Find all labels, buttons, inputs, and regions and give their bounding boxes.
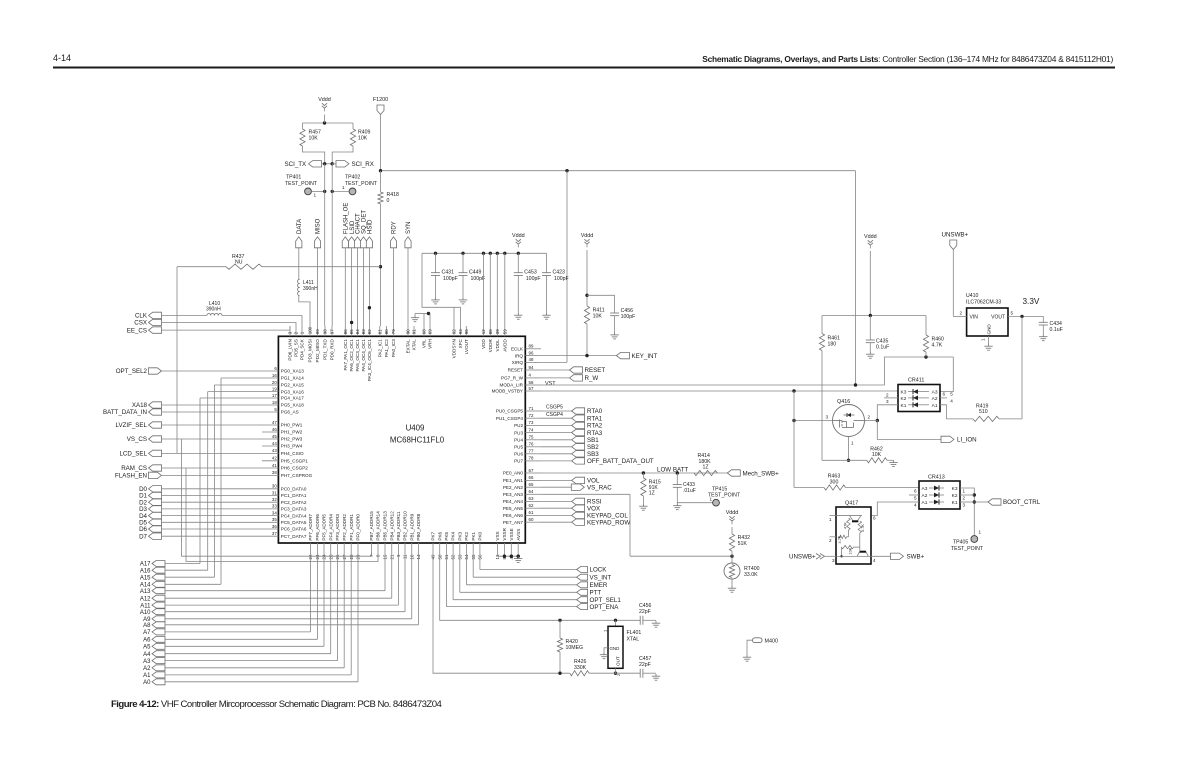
svg-text:SYN: SYN [406, 222, 412, 234]
svg-text:VOUT: VOUT [991, 315, 1005, 321]
svg-text:10K: 10K [849, 547, 853, 554]
svg-text:A2: A2 [143, 666, 151, 672]
svg-text:99: 99 [315, 329, 320, 334]
svg-text:58: 58 [529, 380, 534, 385]
svg-text:PE5_AN5: PE5_AN5 [503, 506, 524, 511]
svg-text:VRL: VRL [422, 339, 427, 348]
svg-text:96: 96 [529, 350, 534, 355]
svg-text:KEY_INT: KEY_INT [632, 353, 658, 360]
svg-text:Vddd: Vddd [864, 234, 877, 240]
svg-text:RTA0: RTA0 [587, 408, 603, 415]
svg-text:RTA3: RTA3 [587, 430, 603, 437]
svg-text:2: 2 [868, 415, 871, 420]
svg-text:95: 95 [464, 329, 469, 334]
svg-text:CLK: CLK [135, 313, 148, 320]
svg-text:88: 88 [488, 329, 493, 334]
svg-text:PC0_DATA0: PC0_DATA0 [281, 487, 307, 492]
svg-text:SB3: SB3 [587, 451, 599, 458]
svg-text:K1: K1 [901, 403, 907, 409]
svg-text:79: 79 [391, 329, 396, 334]
svg-text:NU: NU [235, 260, 243, 266]
svg-text:75: 75 [529, 435, 534, 440]
svg-text:97: 97 [330, 329, 335, 334]
svg-text:EXTAL: EXTAL [406, 339, 411, 354]
svg-text:10K: 10K [358, 136, 368, 142]
svg-text:PK4: PK4 [451, 531, 456, 540]
svg-text:5: 5 [914, 496, 917, 501]
svg-text:LOCK: LOCK [590, 567, 608, 574]
svg-text:XFC: XFC [458, 339, 463, 349]
svg-text:RTA1: RTA1 [587, 415, 603, 422]
svg-text:3: 3 [963, 502, 966, 507]
svg-text:81: 81 [377, 329, 382, 334]
svg-text:42: 42 [272, 456, 277, 461]
svg-text:73: 73 [529, 420, 534, 425]
svg-text:5: 5 [950, 392, 953, 397]
svg-text:PG7_R_W: PG7_R_W [501, 376, 524, 381]
svg-text:34: 34 [272, 510, 277, 515]
svg-text:3: 3 [832, 558, 835, 563]
svg-text:PD3_MOSI: PD3_MOSI [308, 339, 313, 362]
svg-text:Figure 4-12: VHF Controller Mi: Figure 4-12: VHF Controller Mircoprocess… [111, 699, 443, 710]
svg-text:C431: C431 [442, 270, 455, 276]
svg-text:6: 6 [873, 516, 876, 521]
svg-text:U409: U409 [406, 424, 425, 433]
svg-text:PE7_AN7: PE7_AN7 [503, 520, 524, 525]
svg-text:PA0_IC3: PA0_IC3 [391, 339, 396, 357]
svg-text:PU3: PU3 [514, 430, 523, 435]
svg-text:Vddd: Vddd [512, 233, 525, 239]
svg-text:31: 31 [272, 490, 277, 495]
svg-text:Q417: Q417 [845, 501, 858, 507]
svg-text:VSS: VSS [495, 531, 500, 540]
svg-text:PH3_PW4: PH3_PW4 [281, 444, 303, 449]
svg-text:TEST_POINT: TEST_POINT [285, 181, 318, 187]
svg-text:510: 510 [979, 409, 988, 415]
svg-text:PF7_ADDR7: PF7_ADDR7 [308, 514, 313, 541]
svg-text:PA2_IC1: PA2_IC1 [377, 339, 382, 357]
svg-text:10K: 10K [309, 136, 319, 142]
svg-text:390nH: 390nH [206, 306, 221, 312]
svg-text:PU6: PU6 [514, 452, 523, 457]
svg-text:PF6_ADDR6: PF6_ADDR6 [315, 514, 320, 541]
svg-text:MODA_LIR: MODA_LIR [500, 383, 524, 388]
svg-text:CR413: CR413 [928, 475, 945, 481]
svg-text:XA18: XA18 [132, 402, 148, 409]
svg-text:4-14: 4-14 [53, 53, 71, 63]
svg-text:D7: D7 [139, 533, 147, 540]
svg-text:VOX: VOX [587, 505, 600, 512]
svg-text:Vddd: Vddd [581, 233, 594, 239]
svg-text:A2: A2 [932, 396, 938, 402]
svg-text:VDDL: VDDL [495, 339, 500, 352]
svg-text:6: 6 [943, 392, 946, 397]
svg-text:57: 57 [529, 386, 534, 391]
svg-text:1: 1 [979, 530, 982, 535]
svg-text:18: 18 [272, 400, 277, 405]
svg-text:PB2_ADDR10: PB2_ADDR10 [403, 511, 408, 541]
svg-text:PB7_ADDR15: PB7_ADDR15 [369, 511, 374, 541]
svg-text:33: 33 [272, 504, 277, 509]
svg-text:74: 74 [529, 427, 534, 432]
svg-text:66: 66 [529, 475, 534, 480]
svg-text:K2: K2 [901, 396, 907, 402]
svg-text:61: 61 [529, 510, 534, 515]
svg-text:HSID: HSID [368, 219, 374, 234]
svg-text:PA4_OC4_OC1: PA4_OC4_OC1 [361, 339, 366, 372]
svg-text:100pF: 100pF [554, 276, 569, 282]
svg-text:1: 1 [342, 185, 345, 190]
svg-text:PC4_DATA4: PC4_DATA4 [281, 513, 307, 518]
svg-text:78: 78 [529, 456, 534, 461]
svg-text:22pF: 22pF [639, 662, 651, 668]
svg-text:BOOT_CTRL: BOOT_CTRL [1003, 499, 1041, 506]
svg-text:2: 2 [886, 392, 889, 397]
svg-text:OUT: OUT [616, 656, 621, 666]
svg-text:A0: A0 [143, 680, 151, 686]
svg-text:M400: M400 [765, 638, 779, 644]
svg-text:100pF: 100pF [443, 276, 458, 282]
svg-text:A13: A13 [140, 589, 151, 595]
svg-text:100pF: 100pF [526, 276, 541, 282]
svg-text:PC3_DATA3: PC3_DATA3 [281, 507, 307, 512]
svg-text:PG0_XA13: PG0_XA13 [281, 369, 304, 374]
svg-text:0: 0 [387, 198, 390, 204]
svg-text:PH6_CSGP2: PH6_CSGP2 [281, 466, 309, 471]
svg-text:LI_ION: LI_ION [957, 437, 977, 444]
svg-text:0.1uF: 0.1uF [1050, 327, 1063, 333]
svg-text:PE0_AN0: PE0_AN0 [503, 471, 524, 476]
svg-text:VDDSYN: VDDSYN [452, 339, 457, 358]
svg-text:CR411: CR411 [908, 378, 924, 384]
svg-text:4.7K: 4.7K [861, 524, 865, 532]
svg-text:PD4_SCK: PD4_SCK [300, 338, 305, 360]
svg-text:PG2_XA15: PG2_XA15 [281, 383, 304, 388]
svg-text:68: 68 [422, 329, 427, 334]
svg-text:TP402: TP402 [345, 175, 360, 181]
svg-text:SB2: SB2 [587, 444, 599, 451]
svg-text:OPT_ENA: OPT_ENA [590, 604, 620, 611]
svg-text:19: 19 [272, 386, 277, 391]
svg-text:PD2_MISO: PD2_MISO [315, 339, 320, 363]
svg-text:UNSWB+: UNSWB+ [789, 554, 816, 561]
svg-text:RDY: RDY [392, 221, 398, 234]
svg-text:PB1_ADDR9: PB1_ADDR9 [409, 513, 414, 540]
svg-text:71: 71 [529, 406, 534, 411]
svg-text:69: 69 [428, 329, 433, 334]
svg-text:A15: A15 [140, 575, 151, 581]
svg-text:A1: A1 [922, 500, 928, 506]
svg-text:100: 100 [308, 326, 313, 334]
svg-text:R_W: R_W [585, 375, 599, 382]
svg-text:TEST_POINT: TEST_POINT [951, 546, 984, 552]
svg-text:MODB_VSTBY: MODB_VSTBY [492, 389, 523, 394]
svg-text:ILC7062CM-33: ILC7062CM-33 [966, 300, 1001, 306]
svg-text:47K: 47K [844, 522, 848, 529]
svg-text:Vddd: Vddd [726, 510, 739, 516]
svg-text:Schematic Diagrams, Overlays,: Schematic Diagrams, Overlays, and Parts … [702, 54, 1113, 64]
svg-text:PA7_PA1_OC1: PA7_PA1_OC1 [343, 339, 348, 371]
svg-text:PK3: PK3 [457, 531, 462, 540]
svg-text:PH0_PW1: PH0_PW1 [281, 423, 303, 428]
svg-text:MISO: MISO [316, 218, 322, 234]
svg-text:85: 85 [349, 329, 354, 334]
svg-text:PG5_XA18: PG5_XA18 [281, 403, 304, 408]
svg-text:BATT_DATA_IN: BATT_DATA_IN [103, 409, 147, 416]
svg-text:22pF: 22pF [639, 609, 651, 615]
svg-text:SCI_RX: SCI_RX [352, 161, 374, 168]
svg-text:A8: A8 [143, 623, 151, 629]
svg-text:TEST_POINT: TEST_POINT [708, 493, 741, 499]
svg-text:TEST_POINT: TEST_POINT [345, 181, 378, 187]
svg-text:PK0: PK0 [478, 531, 483, 540]
svg-text:12: 12 [481, 329, 486, 334]
svg-text:89: 89 [529, 344, 534, 349]
svg-text:LVZIF_SEL: LVZIF_SEL [115, 422, 147, 429]
svg-text:PE1_AN1: PE1_AN1 [503, 478, 524, 483]
svg-text:VDD: VDD [481, 339, 486, 349]
svg-text:PK7: PK7 [431, 531, 436, 540]
svg-text:K3: K3 [901, 390, 907, 396]
svg-text:A11: A11 [140, 603, 151, 609]
svg-text:67: 67 [529, 468, 534, 473]
svg-text:PB4_ADDR12: PB4_ADDR12 [389, 511, 394, 541]
svg-text:91: 91 [412, 329, 417, 334]
svg-text:VSSE: VSSE [509, 528, 514, 540]
svg-text:CSGP5: CSGP5 [546, 405, 563, 411]
svg-text:3: 3 [825, 415, 828, 420]
svg-text:A4: A4 [143, 652, 151, 658]
svg-text:3.3V: 3.3V [1023, 297, 1040, 306]
svg-text:PB5_ADDR13: PB5_ADDR13 [383, 511, 388, 541]
svg-text:RESET: RESET [508, 368, 524, 373]
svg-text:OPT_SEL2: OPT_SEL2 [116, 368, 148, 375]
svg-text:PTT: PTT [590, 590, 602, 597]
svg-text:90: 90 [406, 329, 411, 334]
svg-text:39: 39 [495, 329, 500, 334]
svg-text:1Z: 1Z [649, 491, 655, 497]
svg-text:PF5_ADDR5: PF5_ADDR5 [322, 514, 327, 541]
svg-text:AVSS: AVSS [516, 529, 521, 541]
svg-text:PA1_IC2: PA1_IC2 [384, 339, 389, 357]
svg-text:PF4_ADDR4: PF4_ADDR4 [328, 514, 333, 541]
svg-text:PE4_AN4: PE4_AN4 [503, 499, 524, 504]
svg-text:300: 300 [830, 479, 839, 485]
svg-text:180: 180 [828, 342, 837, 348]
svg-text:PC7_DATA7: PC7_DATA7 [281, 534, 307, 539]
svg-text:PH4_CSIO: PH4_CSIO [281, 451, 304, 456]
svg-text:OFF_BATT_DATA_OUT: OFF_BATT_DATA_OUT [587, 458, 654, 465]
svg-text:FLASH_OE: FLASH_OE [344, 203, 350, 234]
svg-text:4: 4 [914, 502, 917, 507]
svg-text:30: 30 [272, 484, 277, 489]
svg-text:UNSWB+: UNSWB+ [942, 231, 969, 238]
svg-text:47: 47 [272, 420, 277, 425]
svg-text:1: 1 [897, 392, 900, 397]
svg-text:4: 4 [873, 558, 876, 563]
svg-text:64: 64 [529, 489, 534, 494]
svg-text:XTAL: XTAL [412, 339, 417, 351]
svg-text:59: 59 [502, 329, 507, 334]
svg-text:32: 32 [272, 497, 277, 502]
svg-text:PF1_ADDR1: PF1_ADDR1 [349, 514, 354, 541]
svg-text:390nH: 390nH [303, 286, 318, 292]
svg-text:PG6_AS: PG6_AS [281, 410, 299, 415]
svg-text:PU7: PU7 [514, 459, 523, 464]
svg-text:1: 1 [963, 489, 966, 494]
svg-text:PK2: PK2 [464, 531, 469, 540]
svg-text:VS_CS: VS_CS [127, 436, 147, 443]
svg-text:PA3_IC4_OC5_OC1: PA3_IC4_OC5_OC1 [367, 339, 372, 381]
svg-text:98: 98 [323, 329, 328, 334]
svg-text:FL401: FL401 [627, 630, 642, 636]
svg-text:PB3_ADDR11: PB3_ADDR11 [396, 511, 401, 540]
svg-text:4.7K: 4.7K [932, 343, 943, 349]
svg-text:65: 65 [529, 482, 534, 487]
svg-text:RAM_CS: RAM_CS [121, 465, 147, 472]
svg-text:CSX: CSX [134, 320, 147, 327]
svg-text:C453: C453 [524, 270, 537, 276]
svg-text:PA5_OC3_OC1: PA5_OC3_OC1 [355, 339, 360, 372]
svg-text:PF3_ADDR3: PF3_ADDR3 [335, 514, 340, 541]
svg-text:A12: A12 [140, 596, 151, 602]
svg-text:41: 41 [272, 463, 277, 468]
svg-text:51K: 51K [738, 541, 748, 547]
svg-text:38: 38 [272, 470, 277, 475]
svg-text:KEYPAD_ROW: KEYPAD_ROW [587, 519, 630, 526]
svg-text:A3: A3 [922, 486, 928, 492]
svg-text:36: 36 [272, 524, 277, 529]
svg-text:86: 86 [343, 329, 348, 334]
svg-text:PC6_DATA6: PC6_DATA6 [281, 527, 307, 532]
svg-text:AVDD: AVDD [502, 339, 507, 352]
svg-text:A17: A17 [140, 562, 151, 568]
svg-text:16: 16 [272, 373, 277, 378]
svg-text:PG4_XA17: PG4_XA17 [281, 396, 304, 401]
svg-text:SB1: SB1 [587, 437, 599, 444]
svg-text:PA6_OC2_OC1: PA6_OC2_OC1 [349, 339, 354, 372]
svg-text:A1: A1 [143, 673, 151, 679]
svg-text:PU2: PU2 [514, 423, 523, 428]
svg-text:FLASH_EN: FLASH_EN [115, 473, 147, 480]
svg-text:ECLK: ECLK [511, 347, 524, 352]
svg-text:VRH: VRH [428, 339, 433, 349]
svg-text:PH1_PW2: PH1_PW2 [281, 430, 303, 435]
svg-text:A3: A3 [143, 659, 151, 665]
svg-text:PB0_ADDR8: PB0_ADDR8 [416, 513, 421, 540]
svg-text:10K: 10K [872, 452, 882, 458]
svg-text:Vddd: Vddd [318, 97, 331, 103]
svg-text:PC5_DATA5: PC5_DATA5 [281, 520, 307, 525]
svg-text:20: 20 [272, 380, 277, 385]
svg-text:EMER: EMER [590, 582, 608, 589]
svg-text:PH7_CSPROG: PH7_CSPROG [281, 473, 313, 478]
svg-text:3: 3 [886, 399, 889, 404]
svg-text:4.7K: 4.7K [838, 535, 842, 543]
svg-text:IRQ: IRQ [515, 353, 524, 358]
svg-text:A5: A5 [143, 645, 151, 651]
svg-text:C423: C423 [553, 270, 566, 276]
svg-text:VDDR: VDDR [488, 339, 493, 353]
svg-text:F1200: F1200 [373, 97, 388, 103]
svg-text:63: 63 [529, 496, 534, 501]
svg-text:EE_CS: EE_CS [127, 327, 147, 334]
svg-text:A14: A14 [140, 583, 151, 589]
svg-text:LOW BATT: LOW BATT [657, 466, 688, 473]
svg-text:44: 44 [272, 441, 277, 446]
svg-text:PF2_ADDR2: PF2_ADDR2 [342, 514, 347, 541]
svg-text:A3: A3 [932, 390, 938, 396]
svg-text:77: 77 [529, 449, 534, 454]
svg-text:LVOUT: LVOUT [464, 339, 469, 354]
svg-text:2: 2 [963, 496, 966, 501]
svg-text:PC2_DATA2: PC2_DATA2 [281, 500, 307, 505]
svg-text:SWB+: SWB+ [907, 554, 925, 561]
svg-text:1: 1 [829, 517, 832, 522]
svg-text:PU0_CSGP5: PU0_CSGP5 [496, 409, 524, 414]
svg-text:GND: GND [610, 646, 620, 651]
svg-text:PG3_XA16: PG3_XA16 [281, 389, 304, 394]
svg-text:K2: K2 [952, 493, 958, 499]
svg-text:VIN: VIN [970, 315, 979, 321]
svg-text:17: 17 [272, 393, 277, 398]
svg-text:2: 2 [959, 311, 962, 316]
svg-text:PD5_SS: PD5_SS [294, 339, 299, 357]
svg-text:GND: GND [987, 324, 992, 335]
svg-text:62: 62 [529, 503, 534, 508]
svg-text:10K: 10K [593, 314, 603, 320]
svg-text:PU1_CSGP4: PU1_CSGP4 [496, 416, 524, 421]
svg-text:CSGP4: CSGP4 [546, 412, 563, 418]
svg-text:RTA2: RTA2 [587, 423, 603, 430]
svg-text:48: 48 [529, 357, 534, 362]
svg-text:PH2_PW3: PH2_PW3 [281, 437, 303, 442]
svg-text:33.0K: 33.0K [744, 572, 758, 578]
svg-text:PE2_AN2: PE2_AN2 [503, 485, 524, 490]
svg-text:100pF: 100pF [621, 314, 636, 320]
svg-text:PE3_AN3: PE3_AN3 [503, 492, 524, 497]
svg-text:72: 72 [529, 413, 534, 418]
svg-text:SCI_TX: SCI_TX [285, 161, 307, 168]
svg-text:100pF: 100pF [471, 276, 486, 282]
svg-text:DATA: DATA [297, 219, 303, 234]
svg-text:PK6: PK6 [437, 531, 442, 540]
svg-text:5: 5 [1011, 311, 1014, 316]
svg-text:1: 1 [314, 193, 317, 198]
svg-text:TP415: TP415 [712, 487, 727, 493]
svg-text:XTAL: XTAL [627, 637, 640, 643]
svg-text:46: 46 [272, 427, 277, 432]
svg-text:A10: A10 [140, 610, 151, 616]
svg-text:K1: K1 [952, 500, 958, 506]
svg-text:K3: K3 [952, 486, 958, 492]
svg-text:PK1: PK1 [471, 531, 476, 540]
svg-text:6: 6 [914, 489, 917, 494]
svg-text:A16: A16 [140, 568, 151, 574]
svg-text:PK5: PK5 [444, 531, 449, 540]
svg-text:PU5: PU5 [514, 445, 523, 450]
svg-text:PG1_XA14: PG1_XA14 [281, 376, 304, 381]
svg-text:VS_INT: VS_INT [590, 574, 612, 581]
svg-text:MC68HC11FL0: MC68HC11FL0 [390, 436, 445, 445]
svg-text:TP401: TP401 [286, 175, 301, 181]
svg-text:TP405: TP405 [953, 540, 968, 546]
svg-text:C449: C449 [469, 270, 482, 276]
svg-text:PE6_AN6: PE6_AN6 [503, 513, 524, 518]
svg-text:A1: A1 [932, 403, 938, 409]
svg-text:A6: A6 [143, 638, 151, 644]
svg-text:83: 83 [361, 329, 366, 334]
